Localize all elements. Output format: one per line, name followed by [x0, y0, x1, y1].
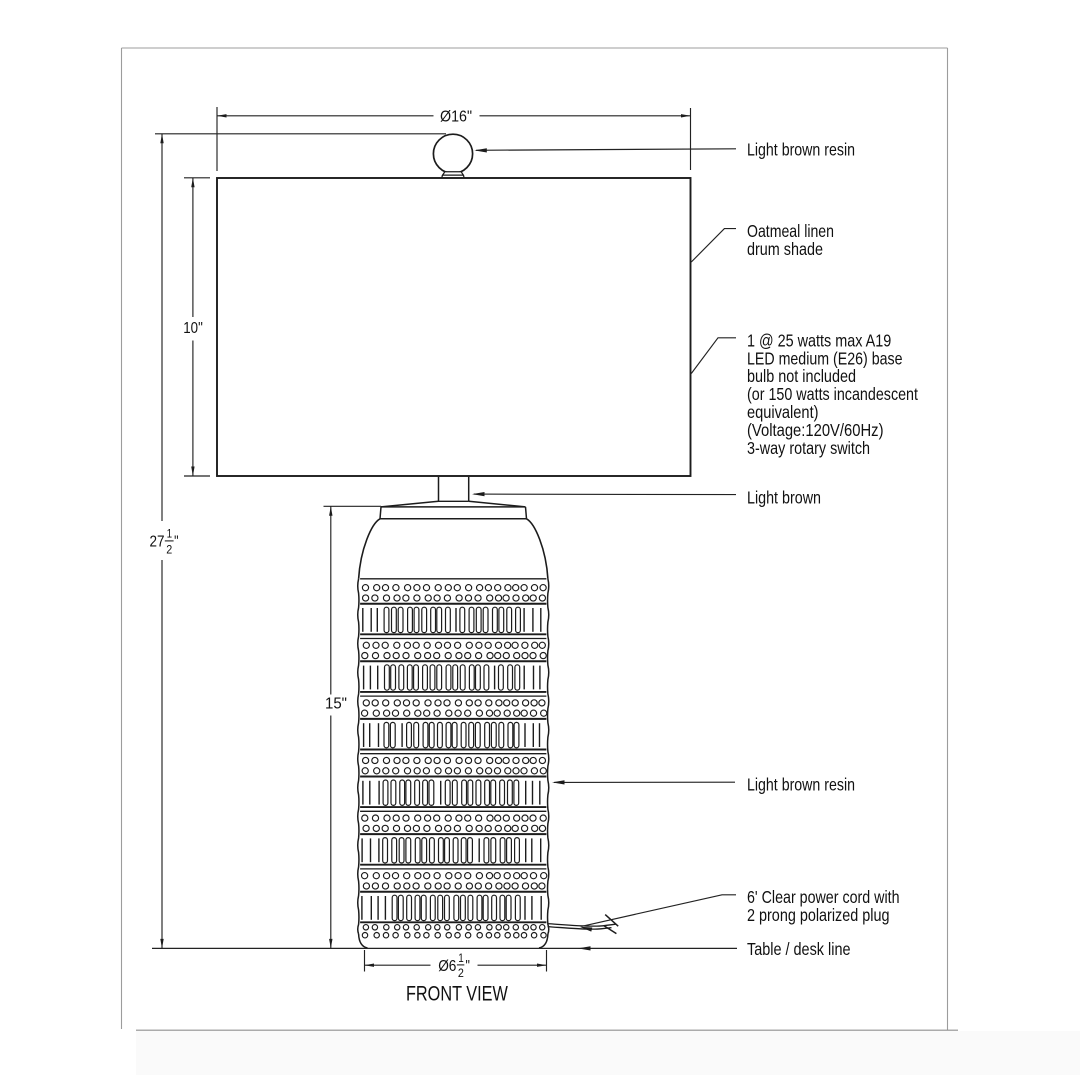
svg-text:FRONT VIEW: FRONT VIEW — [406, 982, 508, 1006]
svg-text:27: 27 — [150, 533, 165, 550]
svg-text:3-way rotary switch: 3-way rotary switch — [747, 438, 870, 458]
svg-text:Ø16": Ø16" — [440, 108, 472, 125]
svg-text:Ø6: Ø6 — [438, 958, 456, 975]
svg-text:1: 1 — [167, 526, 173, 540]
svg-text:Light brown resin: Light brown resin — [747, 774, 855, 794]
svg-text:1: 1 — [458, 951, 464, 965]
svg-text:": " — [174, 533, 178, 550]
svg-text:2 prong polarized plug: 2 prong polarized plug — [747, 905, 890, 925]
svg-text:2: 2 — [458, 966, 464, 980]
svg-text:6' Clear power cord with: 6' Clear power cord with — [747, 887, 900, 907]
svg-text:Light brown: Light brown — [747, 488, 821, 508]
svg-text:Light brown resin: Light brown resin — [747, 140, 855, 160]
svg-text:drum shade: drum shade — [747, 239, 823, 259]
svg-text:Table / desk line: Table / desk line — [747, 939, 851, 959]
svg-text:15": 15" — [325, 695, 347, 712]
svg-text:": " — [466, 958, 470, 975]
svg-text:2: 2 — [166, 543, 172, 557]
svg-text:10": 10" — [183, 320, 203, 337]
